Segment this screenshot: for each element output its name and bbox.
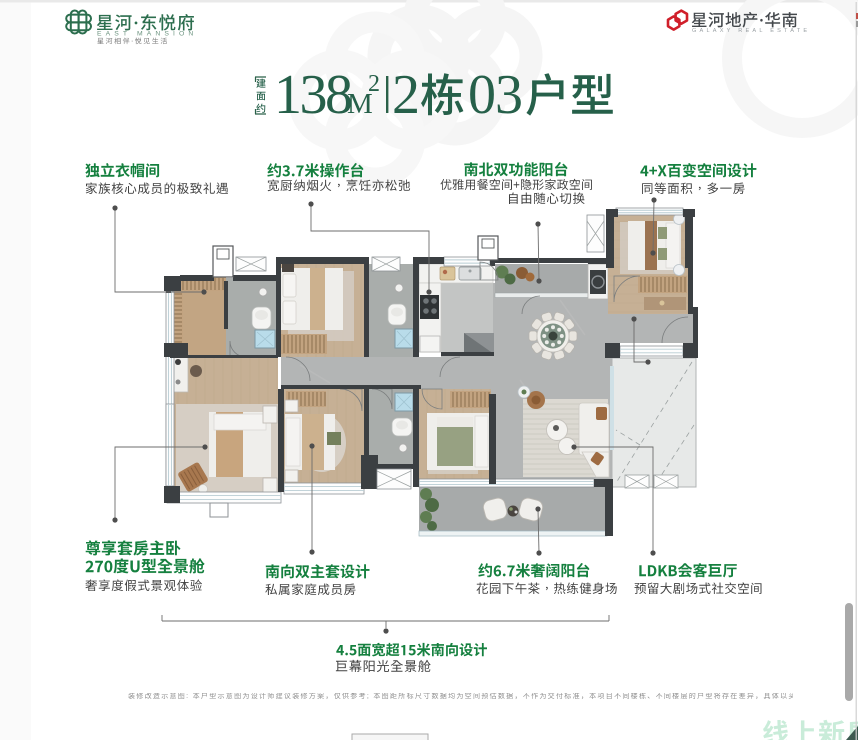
svg-text:2: 2: [392, 64, 420, 126]
svg-text:EAST MANSION: EAST MANSION: [97, 31, 197, 38]
svg-text:GALAXY REAL ESTATE: GALAXY REAL ESTATE: [692, 28, 810, 34]
svg-text:03: 03: [468, 64, 522, 126]
svg-text:2: 2: [368, 71, 380, 97]
svg-text:138: 138: [274, 64, 351, 126]
